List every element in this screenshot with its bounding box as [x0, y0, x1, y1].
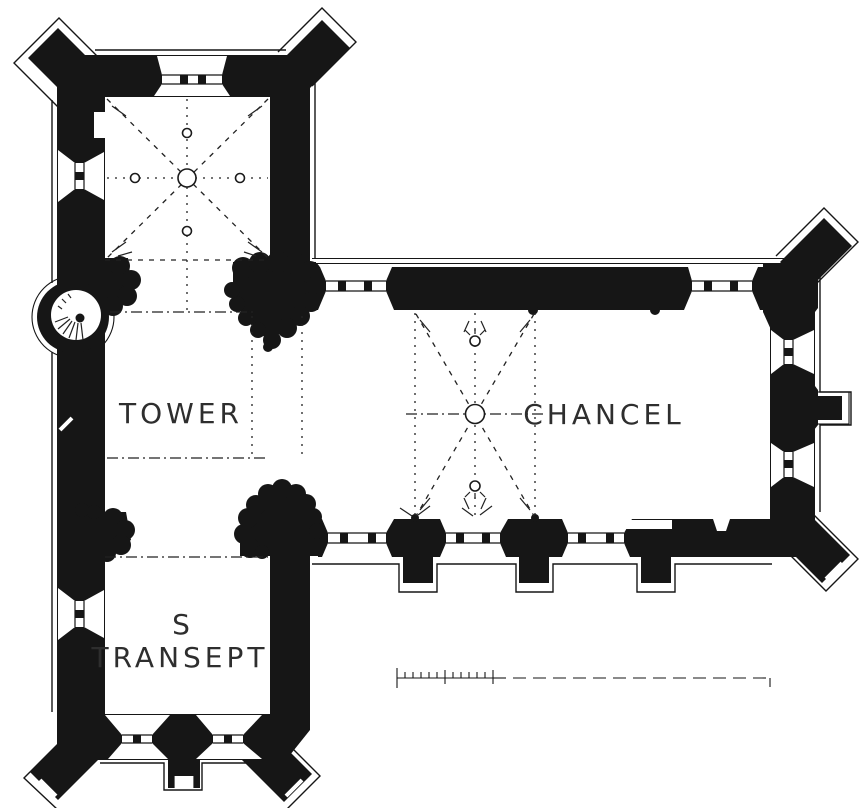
window-chancel-south-2: [440, 519, 508, 557]
transept-east-wall: [270, 556, 310, 716]
respond-shaft: [531, 514, 539, 522]
scale-bar: [397, 668, 772, 688]
chancel-label: CHANCEL: [523, 398, 685, 431]
south-buttress-2: [519, 557, 549, 583]
window-chancel-south-1: [322, 519, 394, 557]
east-central-buttress: [770, 374, 818, 440]
stair-door-notch: [94, 112, 105, 138]
respond-shaft: [411, 514, 419, 522]
south-buttress-3: [641, 557, 671, 583]
south-transept-label-line2: TRANSEPT: [91, 641, 269, 674]
south-buttress-1: [403, 557, 433, 583]
spiral-staircase: [37, 281, 109, 353]
window-chancel-north-1: [318, 267, 394, 310]
respond-shaft: [528, 305, 538, 315]
floor-plan-drawing: TOWER CHANCEL S TRANSEPT: [0, 0, 864, 808]
south-transept-label-line1: S: [172, 608, 194, 641]
sedilia-recess: [610, 520, 672, 529]
tower-label: TOWER: [118, 397, 243, 430]
crossing-pier-se: [234, 479, 325, 559]
south-porch-doorway: [174, 776, 194, 788]
window-tower-north: [154, 56, 230, 96]
respond-shaft: [650, 305, 660, 315]
crossing-pier-ne: [224, 251, 326, 352]
tower-east-wall: [270, 55, 310, 265]
window-chancel-north-2: [684, 267, 760, 310]
church-floor-plan-page: TOWER CHANCEL S TRANSEPT: [0, 0, 864, 808]
east-buttress-projection: [815, 396, 842, 420]
